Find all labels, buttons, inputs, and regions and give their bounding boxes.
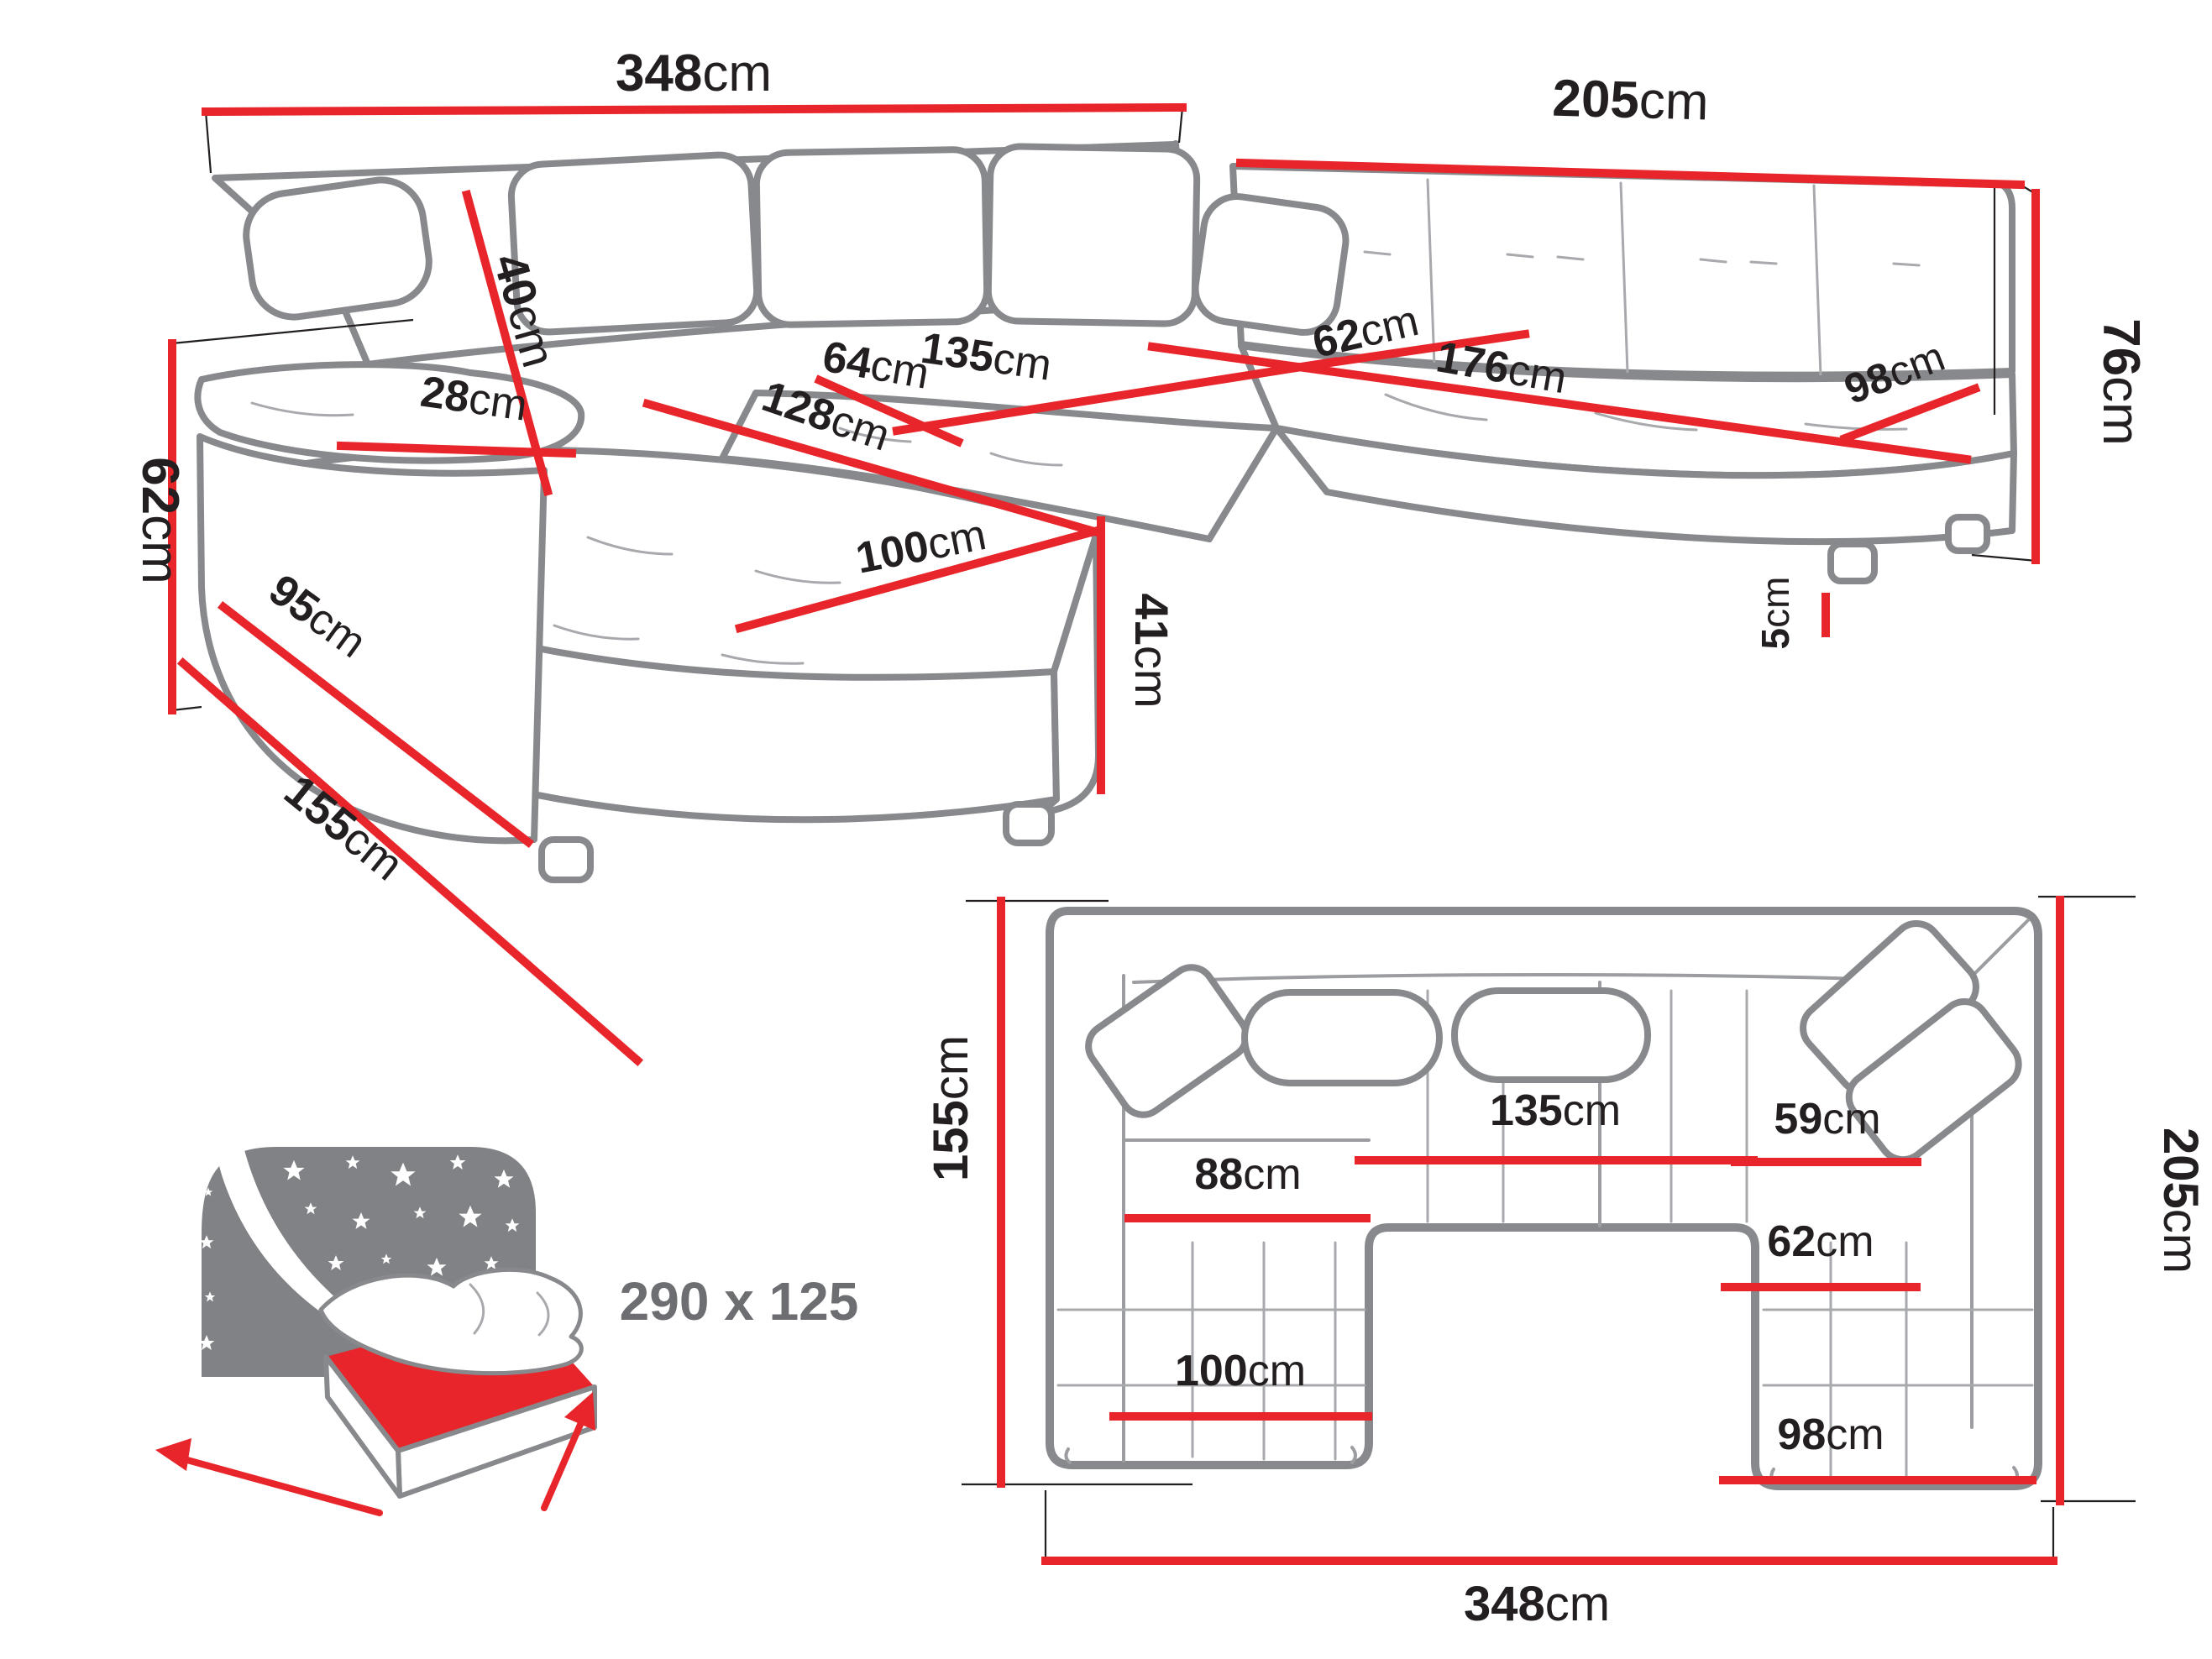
- plan-label-100: 100cm: [1175, 1347, 1306, 1395]
- sleeping-size-label: 290 x 125: [620, 1271, 859, 1332]
- sofa-leg: [1006, 804, 1051, 843]
- plan-label-88: 88cm: [1194, 1150, 1301, 1199]
- plan-label-98: 98cm: [1777, 1410, 1884, 1459]
- sofa-leg: [1948, 517, 1987, 551]
- dim-label-205: 205cm: [1552, 70, 1710, 132]
- dim-label-76: 76cm: [2092, 318, 2150, 446]
- dim-label-41: 41cm: [1125, 594, 1178, 709]
- dim-label-5: 5cm: [1753, 577, 1797, 650]
- plan-label-155: 155cm: [924, 1035, 978, 1181]
- sofa-leg: [1831, 544, 1874, 581]
- plan-label-59: 59cm: [1774, 1095, 1880, 1144]
- sleeper-function-icon: 290 x 125: [155, 1147, 858, 1513]
- mattress-icon: [321, 1269, 595, 1496]
- plan-label-205: 205cm: [2153, 1128, 2208, 1274]
- perspective-sofa-drawing: [197, 144, 2014, 880]
- dim-label-62-left: 62cm: [131, 457, 189, 584]
- plan-label-62: 62cm: [1767, 1217, 1874, 1266]
- dimension-diagram: 348cm 205cm 76cm 62cm 95cm 28cm 40cm 64c…: [0, 0, 2212, 1659]
- dim-label-348: 348cm: [616, 44, 772, 102]
- sofa-leg: [542, 840, 590, 880]
- dim-line-348: [206, 107, 1182, 112]
- plan-label-135: 135cm: [1490, 1086, 1621, 1135]
- dim-label-135: 135cm: [918, 324, 1055, 390]
- plan-label-348: 348cm: [1464, 1577, 1610, 1631]
